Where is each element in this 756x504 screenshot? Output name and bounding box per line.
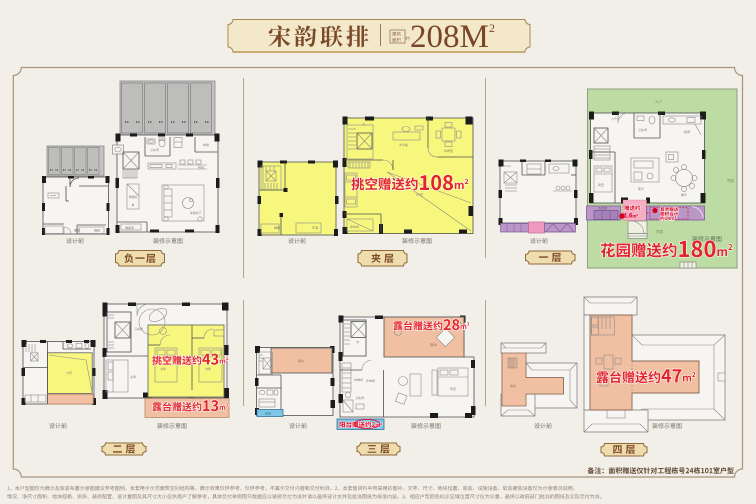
svg-text:208M: 208M (410, 19, 489, 55)
svg-text:2: 2 (489, 21, 495, 35)
